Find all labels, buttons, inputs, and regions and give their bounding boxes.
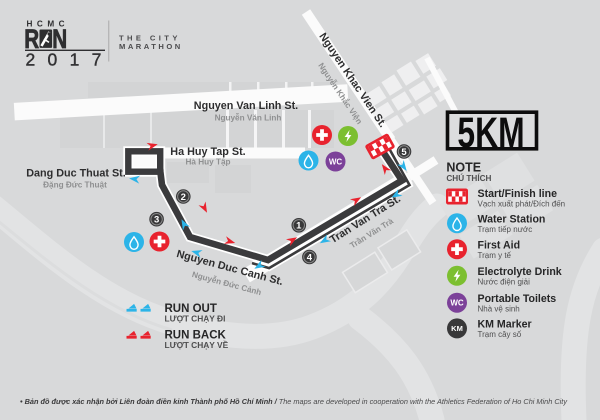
- svg-text:4: 4: [307, 252, 313, 263]
- svg-text:Trạm tiếp nước: Trạm tiếp nước: [478, 225, 533, 234]
- svg-text:• Bản đồ được xác nhận bởi Liê: • Bản đồ được xác nhận bởi Liên đoàn điề…: [20, 397, 568, 406]
- svg-text:Nguyen Van Linh St.: Nguyen Van Linh St.: [194, 100, 298, 112]
- svg-text:5: 5: [401, 147, 407, 158]
- svg-text:MARATHON: MARATHON: [119, 42, 183, 51]
- svg-text:Nhà vệ sinh: Nhà vệ sinh: [478, 305, 520, 314]
- svg-text:Nước điện giải: Nước điện giải: [478, 278, 531, 287]
- svg-text:KM: KM: [451, 324, 463, 333]
- svg-text:Trạm y tế: Trạm y tế: [478, 251, 512, 260]
- svg-text:WC: WC: [450, 299, 464, 308]
- svg-text:KM Marker: KM Marker: [478, 319, 532, 331]
- svg-text:NOTE: NOTE: [446, 161, 481, 175]
- svg-text:Start/Finish line: Start/Finish line: [478, 188, 558, 200]
- svg-text:2017: 2017: [26, 49, 114, 69]
- svg-text:Portable Toilets: Portable Toilets: [478, 293, 557, 305]
- svg-text:Vạch xuất phát/Đích đến: Vạch xuất phát/Đích đến: [478, 200, 566, 209]
- svg-text:Ha Huy Tap St.: Ha Huy Tap St.: [170, 146, 245, 158]
- svg-text:Đặng Đức Thuật: Đặng Đức Thuật: [43, 181, 107, 190]
- svg-text:2: 2: [181, 192, 186, 203]
- svg-text:WC: WC: [329, 158, 343, 167]
- svg-text:First Aid: First Aid: [478, 240, 521, 252]
- svg-text:Dang Duc Thuat St.: Dang Duc Thuat St.: [26, 168, 126, 180]
- svg-text:Nguyễn Văn Linh: Nguyễn Văn Linh: [215, 113, 282, 123]
- svg-text:5KM: 5KM: [457, 109, 524, 157]
- svg-text:1: 1: [296, 221, 302, 232]
- svg-text:3: 3: [154, 215, 159, 226]
- svg-text:Trạm cây số: Trạm cây số: [478, 330, 522, 339]
- svg-text:CHÚ THÍCH: CHÚ THÍCH: [446, 172, 491, 183]
- svg-text:LƯỢT CHẠY VỀ: LƯỢT CHẠY VỀ: [165, 340, 229, 350]
- svg-text:Electrolyte Drink: Electrolyte Drink: [478, 266, 562, 278]
- svg-text:Hà Huy Tập: Hà Huy Tập: [185, 158, 230, 167]
- svg-text:Water Station: Water Station: [478, 214, 546, 226]
- svg-text:LƯỢT CHẠY ĐI: LƯỢT CHẠY ĐI: [165, 313, 226, 323]
